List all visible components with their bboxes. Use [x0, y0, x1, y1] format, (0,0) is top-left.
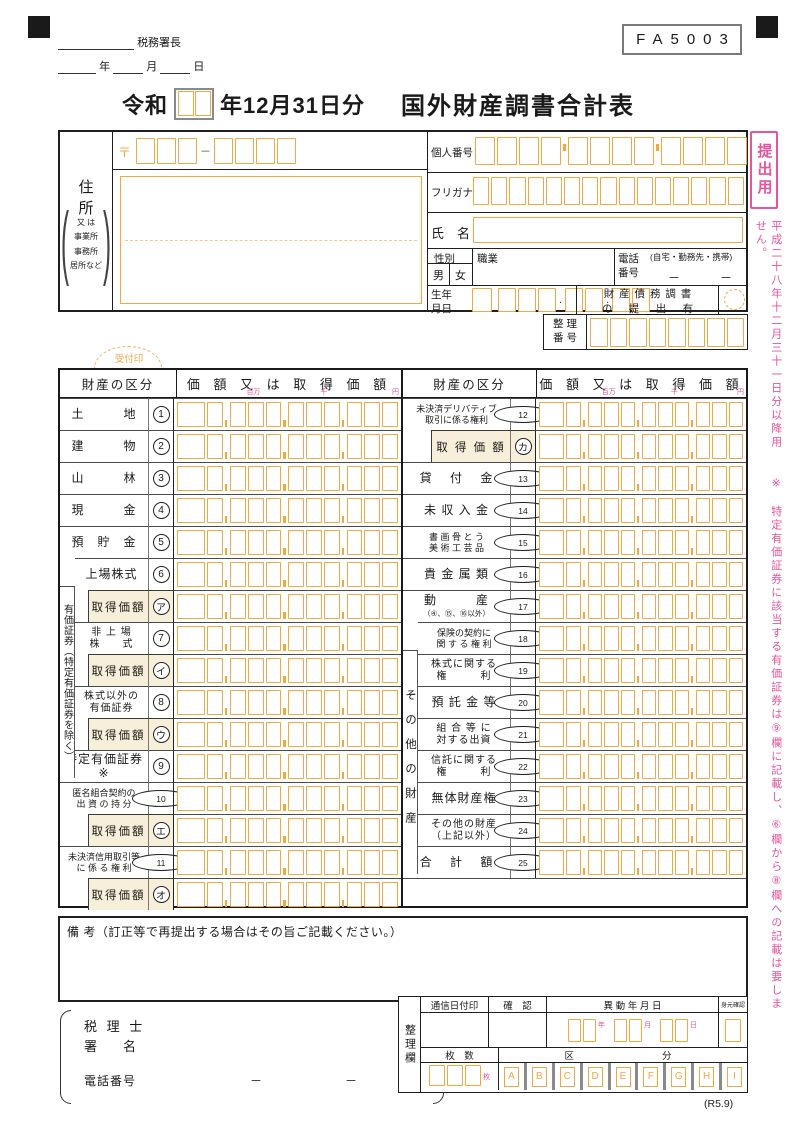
amount-input-boxes[interactable] — [535, 462, 746, 494]
digit-box[interactable] — [642, 818, 656, 843]
digit-box[interactable] — [566, 754, 580, 779]
digit-box[interactable] — [539, 402, 564, 427]
digit-box[interactable] — [696, 658, 710, 683]
digit-box[interactable] — [347, 658, 363, 683]
digit-box[interactable] — [634, 137, 654, 165]
digit-box[interactable] — [604, 690, 618, 715]
digit-box[interactable] — [207, 562, 223, 587]
digit-box[interactable] — [306, 466, 322, 491]
digit-box[interactable] — [519, 137, 539, 165]
amount-input-boxes[interactable] — [173, 558, 401, 590]
digit-box[interactable] — [696, 434, 710, 459]
digit-box[interactable] — [207, 626, 223, 651]
amount-input-boxes[interactable] — [535, 846, 746, 878]
digit-box[interactable] — [661, 137, 681, 165]
digit-box[interactable] — [675, 754, 689, 779]
digit-box[interactable] — [642, 722, 656, 747]
digit-box[interactable] — [177, 690, 205, 715]
digit-box[interactable] — [696, 754, 710, 779]
digit-box[interactable] — [696, 498, 710, 523]
digit-box[interactable] — [248, 850, 264, 875]
digit-box[interactable] — [566, 818, 580, 843]
digit-box[interactable] — [660, 1019, 673, 1042]
digit-box[interactable] — [207, 786, 223, 811]
digit-box[interactable] — [509, 177, 525, 205]
digit-box[interactable] — [447, 1065, 463, 1086]
digit-box[interactable] — [621, 722, 635, 747]
digit-box[interactable] — [729, 754, 743, 779]
digit-box[interactable] — [696, 722, 710, 747]
digit-box[interactable] — [248, 466, 264, 491]
digit-box[interactable] — [637, 177, 653, 205]
digit-box[interactable] — [604, 562, 618, 587]
digit-box[interactable] — [691, 177, 707, 205]
digit-box[interactable] — [382, 434, 398, 459]
digit-box[interactable] — [621, 754, 635, 779]
digit-box[interactable] — [364, 786, 380, 811]
digit-box[interactable] — [642, 786, 656, 811]
digit-box[interactable] — [288, 626, 304, 651]
digit-box[interactable] — [157, 138, 176, 164]
digit-box[interactable] — [207, 722, 223, 747]
digit-box[interactable] — [673, 177, 689, 205]
digit-box[interactable] — [473, 177, 489, 205]
digit-box[interactable] — [588, 658, 602, 683]
digit-box[interactable] — [619, 177, 635, 205]
digit-box[interactable] — [288, 658, 304, 683]
digit-box[interactable] — [566, 466, 580, 491]
digit-box[interactable] — [324, 722, 340, 747]
digit-box[interactable] — [347, 498, 363, 523]
date-year-blank[interactable] — [58, 61, 96, 74]
digit-box[interactable] — [364, 882, 380, 907]
digit-box[interactable] — [266, 658, 282, 683]
digit-box[interactable] — [642, 530, 656, 555]
digit-box[interactable] — [539, 754, 564, 779]
digit-box[interactable] — [306, 754, 322, 779]
birth-year-boxes[interactable] — [498, 288, 556, 312]
digit-box[interactable] — [207, 658, 223, 683]
digit-box[interactable] — [177, 754, 205, 779]
digit-box[interactable] — [288, 530, 304, 555]
kubun-cell-C[interactable]: C — [552, 1063, 580, 1090]
digit-box[interactable] — [364, 562, 380, 587]
digit-box[interactable] — [475, 137, 495, 165]
digit-box[interactable] — [266, 722, 282, 747]
amount-input-boxes[interactable] — [535, 782, 746, 814]
digit-box[interactable] — [178, 138, 197, 164]
digit-box[interactable] — [324, 530, 340, 555]
digit-box[interactable] — [712, 402, 726, 427]
digit-box[interactable] — [658, 850, 672, 875]
digit-box[interactable] — [696, 690, 710, 715]
digit-box[interactable] — [566, 690, 580, 715]
digit-box[interactable] — [288, 818, 304, 843]
digit-box[interactable] — [324, 658, 340, 683]
digit-box[interactable] — [364, 626, 380, 651]
digit-box[interactable] — [324, 850, 340, 875]
digit-box[interactable] — [566, 722, 580, 747]
digit-box[interactable] — [306, 786, 322, 811]
digit-box[interactable] — [675, 818, 689, 843]
digit-box[interactable] — [177, 786, 205, 811]
digit-box[interactable] — [675, 1019, 688, 1042]
digit-box[interactable] — [277, 138, 296, 164]
digit-box[interactable] — [658, 466, 672, 491]
digit-box[interactable] — [729, 402, 743, 427]
digit-box[interactable] — [729, 786, 743, 811]
digit-box[interactable] — [683, 137, 703, 165]
digit-box[interactable] — [230, 530, 246, 555]
digit-box[interactable] — [675, 722, 689, 747]
kubun-cell-A[interactable]: A — [499, 1063, 524, 1090]
digit-box[interactable] — [604, 818, 618, 843]
digit-box[interactable] — [266, 594, 282, 619]
digit-box[interactable] — [364, 818, 380, 843]
amount-input-boxes[interactable] — [535, 526, 746, 558]
amount-input-boxes[interactable] — [173, 846, 401, 878]
digit-box[interactable] — [364, 498, 380, 523]
digit-box[interactable] — [347, 754, 363, 779]
digit-box[interactable] — [207, 690, 223, 715]
digit-box[interactable] — [588, 626, 602, 651]
digit-box[interactable] — [347, 626, 363, 651]
digit-box[interactable] — [629, 318, 647, 347]
digit-box[interactable] — [675, 466, 689, 491]
digit-box[interactable] — [658, 754, 672, 779]
digit-box[interactable] — [675, 626, 689, 651]
digit-box[interactable] — [707, 318, 725, 347]
digit-box[interactable] — [604, 658, 618, 683]
digit-box[interactable] — [266, 786, 282, 811]
digit-box[interactable] — [621, 402, 635, 427]
digit-box[interactable] — [712, 786, 726, 811]
digit-box[interactable] — [324, 754, 340, 779]
digit-box[interactable] — [539, 722, 564, 747]
digit-box[interactable] — [658, 498, 672, 523]
digit-box[interactable] — [288, 434, 304, 459]
digit-box[interactable] — [382, 850, 398, 875]
digit-box[interactable] — [207, 402, 223, 427]
digit-box[interactable] — [235, 138, 254, 164]
era-year-digit-box[interactable] — [178, 91, 194, 116]
digit-box[interactable] — [177, 850, 205, 875]
postal-code-field[interactable]: 〒 － — [118, 137, 296, 165]
digit-box[interactable] — [230, 818, 246, 843]
digit-box[interactable] — [712, 658, 726, 683]
digit-box[interactable] — [566, 434, 580, 459]
digit-box[interactable] — [642, 594, 656, 619]
digit-box[interactable] — [382, 498, 398, 523]
digit-box[interactable] — [604, 594, 618, 619]
digit-box[interactable] — [729, 818, 743, 843]
digit-box[interactable] — [729, 466, 743, 491]
digit-box[interactable] — [177, 882, 205, 907]
digit-box[interactable] — [324, 882, 340, 907]
date-day-blank[interactable] — [160, 61, 190, 74]
gender-male-option[interactable]: 男 — [433, 267, 444, 283]
amount-input-boxes[interactable] — [535, 686, 746, 718]
digit-box[interactable] — [566, 786, 580, 811]
amount-input-boxes[interactable] — [535, 494, 746, 526]
digit-box[interactable] — [306, 658, 322, 683]
digit-box[interactable] — [347, 466, 363, 491]
digit-box[interactable] — [347, 434, 363, 459]
digit-box[interactable] — [696, 818, 710, 843]
change-date-cell[interactable]: 年 月 日 — [547, 1013, 719, 1047]
digit-box[interactable] — [621, 850, 635, 875]
digit-box[interactable] — [207, 434, 223, 459]
digit-box[interactable] — [230, 882, 246, 907]
digit-box[interactable] — [583, 1019, 596, 1042]
digit-box[interactable] — [658, 594, 672, 619]
digit-box[interactable] — [230, 626, 246, 651]
amount-input-boxes[interactable] — [535, 558, 746, 590]
digit-box[interactable] — [248, 402, 264, 427]
amount-input-boxes[interactable] — [535, 750, 746, 782]
digit-box[interactable] — [675, 594, 689, 619]
digit-box[interactable] — [230, 594, 246, 619]
era-year-digit-box[interactable] — [195, 91, 211, 116]
amount-input-boxes[interactable] — [173, 878, 401, 910]
date-month-blank[interactable] — [113, 61, 143, 74]
digit-box[interactable] — [230, 562, 246, 587]
digit-box[interactable] — [658, 786, 672, 811]
digit-box[interactable] — [621, 498, 635, 523]
digit-box[interactable] — [288, 690, 304, 715]
sheet-count-cell[interactable]: 枚 — [421, 1063, 499, 1090]
digit-box[interactable] — [539, 818, 564, 843]
digit-box[interactable] — [382, 626, 398, 651]
digit-box[interactable] — [248, 562, 264, 587]
amount-input-boxes[interactable] — [535, 718, 746, 750]
digit-box[interactable] — [266, 818, 282, 843]
amount-input-boxes[interactable] — [535, 590, 746, 622]
digit-box[interactable] — [612, 137, 632, 165]
digit-box[interactable] — [177, 722, 205, 747]
digit-box[interactable] — [696, 626, 710, 651]
digit-box[interactable] — [539, 626, 564, 651]
address-input-area[interactable] — [120, 176, 422, 304]
digit-box[interactable] — [729, 850, 743, 875]
digit-box[interactable] — [248, 754, 264, 779]
digit-box[interactable] — [539, 850, 564, 875]
gender-female-option[interactable]: 女 — [455, 267, 466, 283]
digit-box[interactable] — [728, 177, 744, 205]
amount-input-boxes[interactable] — [535, 430, 746, 462]
digit-box[interactable] — [539, 594, 564, 619]
digit-box[interactable] — [266, 850, 282, 875]
digit-box[interactable] — [568, 1019, 581, 1042]
digit-box[interactable] — [729, 498, 743, 523]
digit-box[interactable] — [642, 626, 656, 651]
digit-box[interactable] — [566, 530, 580, 555]
digit-box[interactable] — [177, 626, 205, 651]
digit-box[interactable] — [364, 690, 380, 715]
digit-box[interactable] — [588, 690, 602, 715]
digit-box[interactable] — [705, 137, 725, 165]
digit-box[interactable] — [288, 594, 304, 619]
digit-box[interactable] — [347, 786, 363, 811]
digit-box[interactable] — [248, 594, 264, 619]
digit-box[interactable] — [382, 882, 398, 907]
digit-box[interactable] — [364, 754, 380, 779]
digit-box[interactable] — [712, 850, 726, 875]
digit-box[interactable] — [588, 594, 602, 619]
digit-box[interactable] — [207, 818, 223, 843]
digit-box[interactable] — [248, 530, 264, 555]
digit-box[interactable] — [712, 562, 726, 587]
digit-box[interactable] — [177, 658, 205, 683]
amount-input-boxes[interactable] — [173, 526, 401, 558]
digit-box[interactable] — [675, 530, 689, 555]
kubun-cell-I[interactable]: I — [719, 1063, 747, 1090]
digit-box[interactable] — [288, 882, 304, 907]
digit-box[interactable] — [382, 530, 398, 555]
digit-box[interactable] — [266, 882, 282, 907]
digit-box[interactable] — [604, 786, 618, 811]
digit-box[interactable] — [347, 850, 363, 875]
digit-box[interactable] — [668, 318, 686, 347]
digit-box[interactable] — [248, 498, 264, 523]
digit-box[interactable] — [696, 562, 710, 587]
digit-box[interactable] — [658, 434, 672, 459]
digit-box[interactable] — [729, 722, 743, 747]
digit-box[interactable] — [539, 786, 564, 811]
amount-input-boxes[interactable] — [173, 654, 401, 686]
digit-box[interactable] — [658, 530, 672, 555]
digit-box[interactable] — [306, 722, 322, 747]
digit-box[interactable] — [588, 466, 602, 491]
postal-code-first3[interactable] — [136, 138, 197, 164]
digit-box[interactable] — [347, 594, 363, 619]
digit-box[interactable] — [207, 754, 223, 779]
digit-box[interactable] — [658, 658, 672, 683]
digit-box[interactable] — [347, 562, 363, 587]
amount-input-boxes[interactable] — [173, 590, 401, 622]
digit-box[interactable] — [207, 850, 223, 875]
digit-box[interactable] — [248, 434, 264, 459]
era-year-input[interactable] — [174, 88, 214, 120]
amount-input-boxes[interactable] — [173, 622, 401, 654]
digit-box[interactable] — [248, 786, 264, 811]
digit-box[interactable] — [604, 626, 618, 651]
digit-box[interactable] — [266, 402, 282, 427]
digit-box[interactable] — [604, 850, 618, 875]
digit-box[interactable] — [696, 402, 710, 427]
digit-box[interactable] — [207, 466, 223, 491]
digit-box[interactable] — [696, 466, 710, 491]
digit-box[interactable] — [655, 177, 671, 205]
digit-box[interactable] — [729, 690, 743, 715]
digit-box[interactable] — [539, 690, 564, 715]
digit-box[interactable] — [539, 562, 564, 587]
digit-box[interactable] — [347, 818, 363, 843]
digit-box[interactable] — [207, 498, 223, 523]
digit-box[interactable] — [642, 434, 656, 459]
name-input[interactable] — [473, 217, 743, 243]
digit-box[interactable] — [177, 594, 205, 619]
digit-box[interactable] — [518, 288, 536, 312]
digit-box[interactable] — [629, 1019, 642, 1042]
digit-box[interactable] — [566, 594, 580, 619]
digit-box[interactable] — [566, 658, 580, 683]
digit-box[interactable] — [364, 402, 380, 427]
digit-box[interactable] — [621, 594, 635, 619]
digit-box[interactable] — [324, 402, 340, 427]
digit-box[interactable] — [566, 626, 580, 651]
digit-box[interactable] — [177, 498, 205, 523]
digit-box[interactable] — [712, 466, 726, 491]
digit-box[interactable] — [214, 138, 233, 164]
digit-box[interactable] — [528, 177, 544, 205]
digit-box[interactable] — [207, 882, 223, 907]
digit-box[interactable] — [610, 318, 628, 347]
digit-box[interactable] — [347, 722, 363, 747]
digit-box[interactable] — [465, 1065, 481, 1086]
postal-code-last4[interactable] — [214, 138, 296, 164]
digit-box[interactable] — [712, 690, 726, 715]
digit-box[interactable] — [642, 754, 656, 779]
digit-box[interactable] — [675, 850, 689, 875]
digit-box[interactable] — [498, 288, 516, 312]
digit-box[interactable] — [658, 818, 672, 843]
digit-box[interactable] — [364, 594, 380, 619]
amount-input-boxes[interactable] — [173, 814, 401, 846]
digit-box[interactable] — [604, 434, 618, 459]
digit-box[interactable] — [306, 850, 322, 875]
digit-box[interactable] — [621, 466, 635, 491]
digit-box[interactable] — [642, 658, 656, 683]
digit-box[interactable] — [288, 722, 304, 747]
digit-box[interactable] — [382, 818, 398, 843]
digit-box[interactable] — [712, 626, 726, 651]
digit-box[interactable] — [566, 498, 580, 523]
digit-box[interactable] — [642, 850, 656, 875]
digit-box[interactable] — [248, 626, 264, 651]
digit-box[interactable] — [306, 882, 322, 907]
digit-box[interactable] — [177, 562, 205, 587]
digit-box[interactable] — [729, 626, 743, 651]
digit-box[interactable] — [266, 434, 282, 459]
digit-box[interactable] — [729, 562, 743, 587]
digit-box[interactable] — [364, 434, 380, 459]
digit-box[interactable] — [642, 466, 656, 491]
digit-box[interactable] — [266, 626, 282, 651]
digit-box[interactable] — [642, 690, 656, 715]
digit-box[interactable] — [604, 466, 618, 491]
digit-box[interactable] — [658, 690, 672, 715]
digit-box[interactable] — [324, 786, 340, 811]
digit-box[interactable] — [712, 594, 726, 619]
digit-box[interactable] — [288, 850, 304, 875]
digit-box[interactable] — [248, 690, 264, 715]
digit-box[interactable] — [230, 786, 246, 811]
digit-box[interactable] — [564, 177, 580, 205]
my-number-input[interactable] — [475, 137, 747, 165]
digit-box[interactable] — [382, 562, 398, 587]
digit-box[interactable] — [248, 722, 264, 747]
digit-box[interactable] — [347, 402, 363, 427]
digit-box[interactable] — [382, 690, 398, 715]
digit-box[interactable] — [230, 690, 246, 715]
digit-box[interactable] — [347, 882, 363, 907]
digit-box[interactable] — [727, 137, 747, 165]
digit-box[interactable] — [266, 498, 282, 523]
digit-box[interactable] — [541, 137, 561, 165]
digit-box[interactable] — [256, 138, 275, 164]
digit-box[interactable] — [588, 754, 602, 779]
